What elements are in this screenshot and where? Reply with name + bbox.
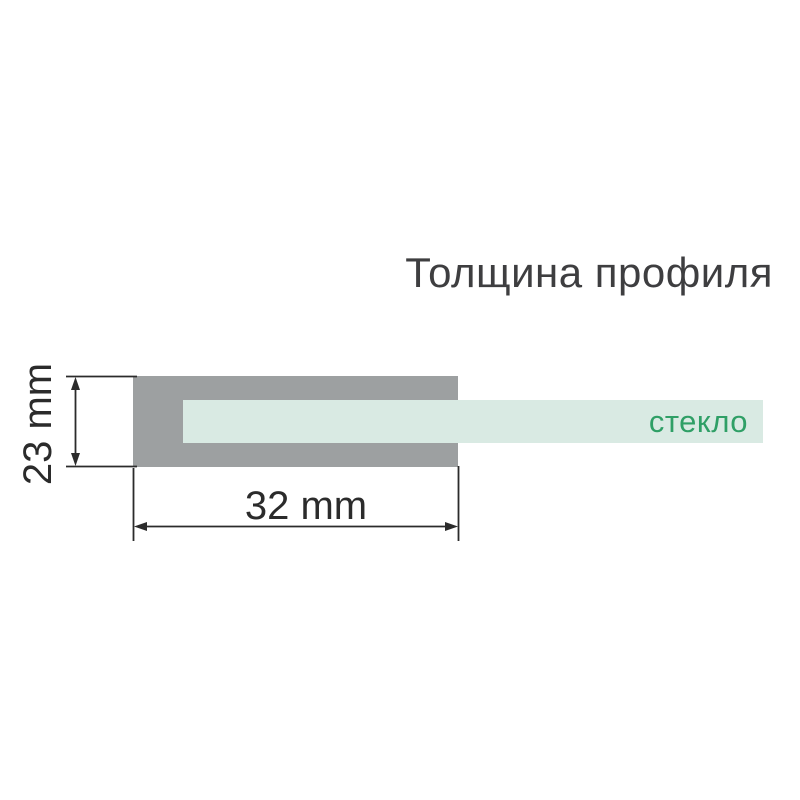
height-dimension-label: 23 mm bbox=[18, 363, 58, 485]
width-dimension-label: 32 mm bbox=[245, 486, 367, 526]
diagram-canvas: Толщина профиля стекло 23 mm 32 mm bbox=[0, 0, 800, 800]
height-dimension-arrow bbox=[66, 377, 137, 467]
glass-label: стекло bbox=[649, 406, 748, 437]
diagram-title: Толщина профиля bbox=[405, 252, 773, 294]
glass-panel: стекло bbox=[183, 400, 763, 443]
